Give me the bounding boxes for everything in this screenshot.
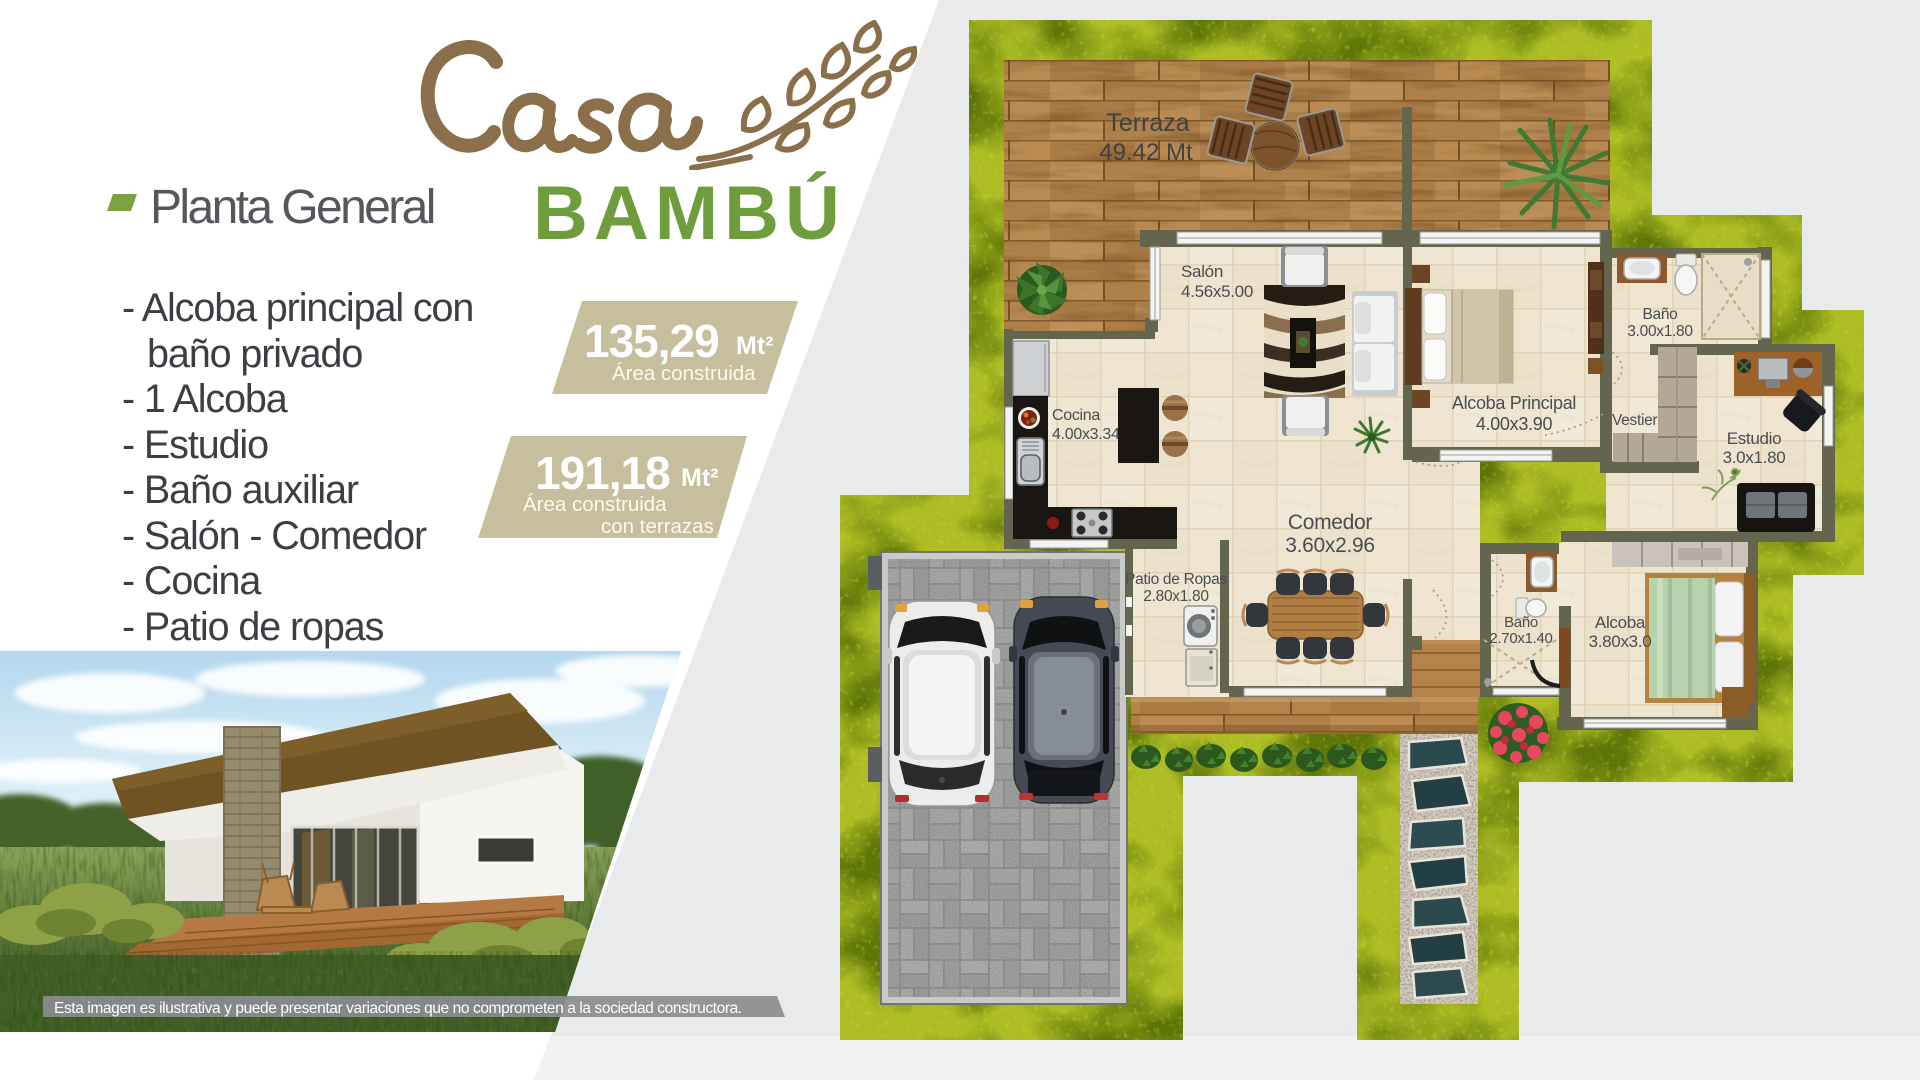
svg-text:3.80x3.0: 3.80x3.0: [1589, 632, 1652, 651]
svg-text:Baño: Baño: [1504, 614, 1538, 631]
svg-text:Salón: Salón: [1181, 262, 1223, 281]
svg-text:Comedor: Comedor: [1288, 511, 1373, 534]
svg-text:49.42 Mt: 49.42 Mt: [1099, 139, 1193, 166]
svg-text:4.56x5.00: 4.56x5.00: [1181, 282, 1253, 301]
svg-text:3.0x1.80: 3.0x1.80: [1723, 448, 1786, 467]
svg-text:4.00x3.90: 4.00x3.90: [1476, 414, 1553, 434]
svg-text:Cocina: Cocina: [1052, 407, 1100, 424]
svg-text:Vestier: Vestier: [1612, 412, 1657, 429]
svg-text:Alcoba Principal: Alcoba Principal: [1452, 393, 1576, 413]
svg-text:3.60x2.96: 3.60x2.96: [1285, 534, 1375, 557]
svg-text:Terraza: Terraza: [1106, 109, 1189, 137]
svg-text:4.00x3.34: 4.00x3.34: [1052, 426, 1120, 443]
svg-text:Estudio: Estudio: [1727, 429, 1782, 448]
svg-text:Patio de Ropas: Patio de Ropas: [1125, 571, 1227, 588]
svg-text:Alcoba: Alcoba: [1595, 613, 1646, 632]
svg-text:2.80x1.80: 2.80x1.80: [1143, 588, 1209, 605]
svg-text:Baño: Baño: [1643, 306, 1678, 323]
svg-text:3.00x1.80: 3.00x1.80: [1627, 323, 1693, 340]
svg-text:2.70x1.40: 2.70x1.40: [1489, 630, 1552, 647]
